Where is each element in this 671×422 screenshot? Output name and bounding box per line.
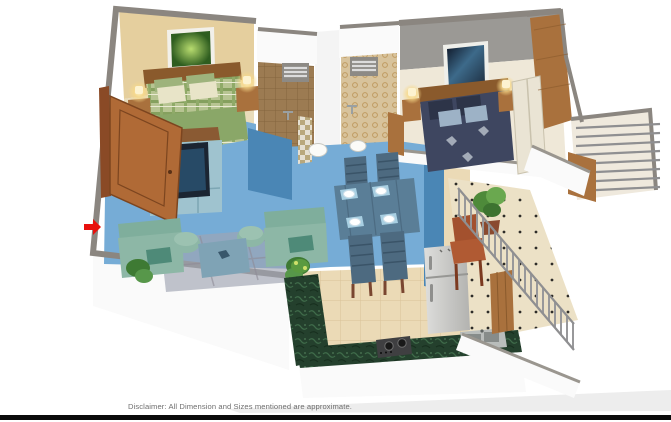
floorplan-page: Disclaimer: All Dimension and Sizes ment… <box>0 0 671 422</box>
lamp-shade <box>408 88 416 96</box>
bath-door <box>388 112 404 156</box>
kitchen-cabinet <box>490 270 514 334</box>
lamp-shade <box>135 86 143 94</box>
disclaimer-text: Disclaimer: All Dimension and Sizes ment… <box>128 402 352 411</box>
pillow <box>189 81 218 100</box>
floorplan-image: Disclaimer: All Dimension and Sizes ment… <box>0 0 671 422</box>
bottom-bar <box>0 415 671 420</box>
pillow <box>157 85 186 104</box>
pillow-light <box>464 105 488 123</box>
wash-basin <box>309 144 327 157</box>
counter-plant <box>291 259 309 273</box>
louver-window <box>350 57 378 76</box>
pillow-light <box>438 109 462 127</box>
highlight-wall-1 <box>248 128 292 200</box>
door-knob <box>168 170 172 174</box>
picture-art <box>171 31 211 67</box>
lamp-shade <box>243 76 251 84</box>
toilet <box>350 141 366 152</box>
tile-wall-strip <box>298 116 312 164</box>
entry-door-frame <box>99 86 111 198</box>
lamp-shade <box>502 80 510 88</box>
louver-window <box>282 63 309 82</box>
